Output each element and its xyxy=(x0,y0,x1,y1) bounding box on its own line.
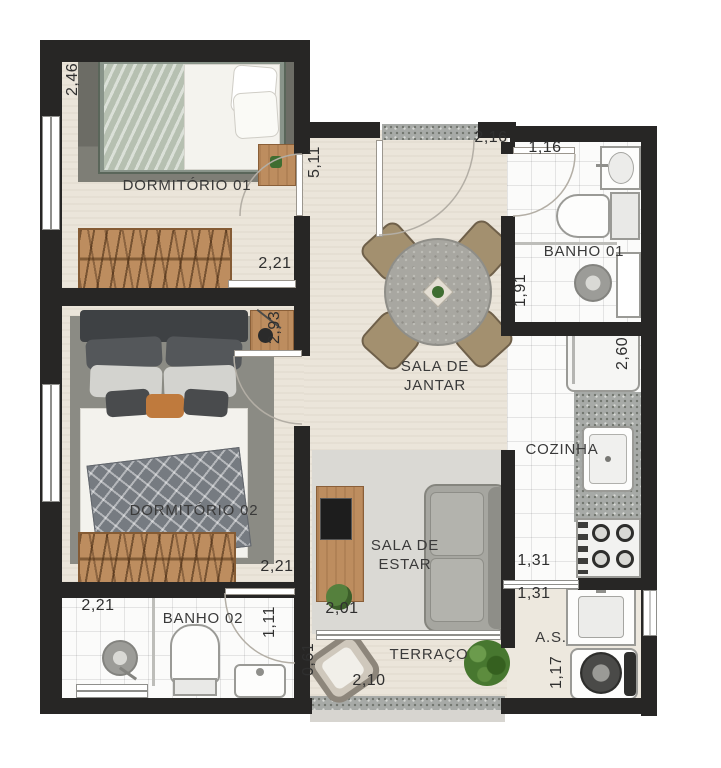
duct-shaft xyxy=(616,252,641,318)
toilet-bathroom-2 xyxy=(170,624,220,684)
wardrobe-bedroom-1 xyxy=(78,228,232,290)
dim-bathroom2-door: 1,11 xyxy=(261,595,279,649)
wall xyxy=(294,216,310,356)
dim-kitchen-length: 2,60 xyxy=(614,324,632,382)
dim-laundry-length: 1,17 xyxy=(548,646,566,698)
sink-basin-bathroom-1 xyxy=(608,152,634,184)
room-label-kitchen: COZINHA xyxy=(514,441,610,460)
sliding-door-terrace xyxy=(316,630,501,640)
burner xyxy=(616,550,634,568)
centerpiece-plant xyxy=(432,286,444,298)
room-label-bedroom-1: DORMITÓRIO 01 xyxy=(92,177,282,196)
stove-knobs xyxy=(578,522,588,574)
dim-terrace-width: 2,10 xyxy=(342,672,396,690)
wall xyxy=(501,698,657,714)
dim-bathroom1-width: 1,16 xyxy=(520,139,570,157)
burner xyxy=(592,524,610,542)
dim-dining-width: 2,16 xyxy=(464,129,518,147)
burner xyxy=(616,524,634,542)
door-bedroom-1 xyxy=(296,154,303,216)
wall xyxy=(501,602,515,648)
dim-bedroom1-door: 2,21 xyxy=(248,255,302,273)
washer-panel xyxy=(624,652,636,696)
dim-laundry-width: 1,31 xyxy=(510,585,558,603)
dim-bedroom1-width: 2,46 xyxy=(64,50,82,108)
washer-drum xyxy=(580,652,622,694)
double-bed-headboard xyxy=(80,310,248,342)
dim-terrace-depth: 0,61 xyxy=(300,632,318,686)
window-bedroom-2 xyxy=(42,384,60,502)
room-label-bathroom-1: BANHO 01 xyxy=(528,243,640,262)
nightstand-plant xyxy=(270,156,282,168)
entry-door xyxy=(376,140,383,237)
laundry-faucet xyxy=(596,590,606,593)
shower-head-bathroom-1 xyxy=(574,264,612,302)
toilet-tank-bathroom-1 xyxy=(610,192,640,240)
fridge-handle xyxy=(572,336,575,384)
window-laundry xyxy=(643,590,657,636)
pillow xyxy=(232,91,279,140)
faucet-bathroom-2 xyxy=(256,668,264,676)
room-label-bathroom-2: BANHO 02 xyxy=(146,610,260,629)
dim-bathroom1-length: 1,91 xyxy=(512,261,530,319)
room-label-laundry: A.S. xyxy=(526,629,576,648)
door-bathroom-2 xyxy=(225,588,295,595)
window-bedroom-1 xyxy=(42,116,60,230)
closet-sliding-door-1 xyxy=(228,280,296,288)
toilet-bathroom-1 xyxy=(556,194,610,238)
shower-head xyxy=(102,640,138,676)
terrace-outer-rail xyxy=(310,710,505,722)
dim-kitchen-width: 1,31 xyxy=(510,552,558,570)
wall xyxy=(578,578,641,590)
dim-living-width: 2,01 xyxy=(314,600,370,618)
burner xyxy=(592,550,610,568)
toilet-tank-bathroom-2 xyxy=(173,678,217,696)
single-bed-blanket xyxy=(104,64,184,170)
tv xyxy=(320,498,352,540)
floor-plan: DORMITÓRIO 01 DORMITÓRIO 02 BANHO 01 BAN… xyxy=(0,0,721,768)
room-label-terrace: TERRAÇO xyxy=(380,646,478,665)
wall xyxy=(40,698,312,714)
wardrobe-bedroom-2 xyxy=(78,532,236,586)
dim-dining-length: 5,11 xyxy=(306,133,324,191)
accent-pillow xyxy=(105,388,151,417)
dim-bathroom2-width: 2,21 xyxy=(72,597,124,615)
dim-bedroom2-length: 2,93 xyxy=(266,299,284,355)
room-label-living: SALA DE ESTAR xyxy=(352,537,458,575)
accent-pillow xyxy=(183,388,229,417)
window-bathroom-2 xyxy=(76,684,148,698)
laundry-tank-basin xyxy=(578,596,624,638)
room-label-bedroom-2: DORMITÓRIO 02 xyxy=(96,502,292,521)
accent-pillow-orange xyxy=(146,394,184,418)
room-label-dining: SALA DE JANTAR xyxy=(374,358,496,396)
dim-bedroom2-door: 2,21 xyxy=(250,558,304,576)
faucet-bathroom-1 xyxy=(596,164,608,167)
